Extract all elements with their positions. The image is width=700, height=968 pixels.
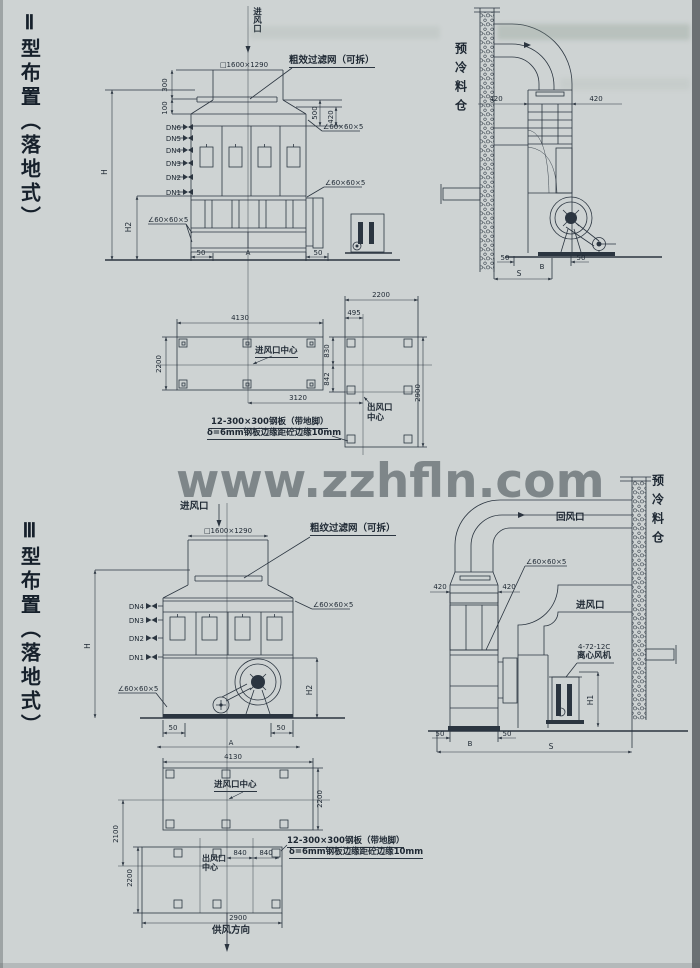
dim-2900: 2900 — [229, 914, 247, 922]
dim-2100: 2100 — [112, 825, 120, 843]
dim-840b: 840 — [259, 849, 272, 857]
angle-steel-1: ∠60×60×5 — [323, 123, 363, 131]
dim-3120: 3120 — [289, 394, 307, 402]
dim-B: B — [540, 263, 545, 271]
dim-840a: 840 — [233, 849, 246, 857]
dim-50r: 50 — [314, 249, 323, 257]
dim-S: S — [549, 742, 554, 751]
type3-side-inlet-label: 进风口 — [576, 601, 605, 612]
dim-420r: 420 — [589, 95, 602, 103]
angle-steel-6: ∠60×60×5 — [526, 558, 566, 566]
dim-100: 100 — [161, 101, 169, 114]
type3-section-title: Ⅲ型布置（落地式） — [17, 518, 39, 738]
ghost-bleedthrough-3 — [560, 78, 690, 90]
dim-2900: 2900 — [414, 384, 422, 402]
type2-rear-fan — [306, 198, 392, 253]
dim-50r: 50 — [577, 254, 586, 262]
dim-50l: 50 — [169, 724, 178, 732]
inlet-size-label: □1600×1290 — [220, 61, 268, 69]
watermark: www.zzhfln.com — [176, 456, 605, 509]
type3-inlet-label: 进风口 — [180, 502, 209, 513]
dn4-label: DN4 — [166, 147, 182, 155]
angle-steel-4: ∠60×60×5 — [313, 601, 353, 609]
dim-842: 842 — [323, 372, 331, 385]
dim-A: A — [246, 249, 251, 257]
dim-H2: H2 — [305, 685, 314, 696]
dim-420: 420 — [327, 110, 335, 123]
type3-plan-note-1: 12-300×300钢板（带地脚） — [287, 837, 404, 848]
scan-edge-left — [0, 0, 3, 968]
angle-steel-5: ∠60×60×5 — [118, 685, 158, 693]
type2-plan-note-2: δ=6mm钢板边缘距砼边缘10mm — [207, 429, 341, 440]
dn1-label: DN1 — [129, 654, 144, 662]
angle-steel-2: ∠60×60×5 — [325, 179, 365, 187]
ghost-bleedthrough-2 — [497, 24, 690, 40]
dn3-label: DN3 — [129, 617, 144, 625]
dim-420l: 420 — [433, 583, 446, 591]
dn3-label: DN3 — [166, 160, 181, 168]
type3-plan-note-2: δ=6mm钢板边缘距砼边缘10mm — [289, 848, 423, 859]
dim-4130: 4130 — [231, 314, 249, 322]
scan-edge-right — [692, 0, 700, 968]
dim-50l: 50 — [501, 254, 510, 262]
dn4-label: DN4 — [129, 603, 145, 611]
dim-H2: H2 — [124, 222, 133, 233]
type2-plan-note-1: 12-300×300钢板（带地脚） — [211, 418, 328, 429]
type2-plan-pads-right — [347, 339, 412, 443]
dim-4130: 4130 — [224, 753, 242, 761]
type3-supply-direction-label: 供风方向 — [212, 926, 250, 937]
inlet-size-label-3: □1600×1290 — [204, 527, 252, 535]
type3-front-fan — [213, 659, 281, 714]
type2-silo-label: 预冷料仓 — [453, 42, 466, 118]
scanned-drawing-page: DN6 DN5 DN4 DN3 DN2 DN1 300 100 500 420 … — [0, 0, 700, 968]
angle-steel-3: ∠60×60×5 — [148, 216, 188, 224]
type3-side-motor — [546, 677, 584, 724]
type2-side-view: 420 420 50 B 50 S — [441, 8, 662, 279]
dim-50r: 50 — [503, 730, 512, 738]
type3-dn-nozzles: DN4 DN3 DN2 DN1 — [129, 603, 163, 662]
dim-A: A — [229, 739, 234, 747]
dn2-label: DN2 — [166, 174, 181, 182]
dim-H: H — [83, 643, 92, 649]
type2-plan-inlet-center: 进风口中心 — [255, 347, 298, 358]
type3-front-view: □1600×1290 DN4 DN3 DN2 DN1 — [83, 503, 353, 948]
type3-plan-outlet-center-2: 中心 — [202, 864, 218, 873]
fan-model-label: 4-72-12C — [578, 643, 610, 651]
type2-section-title: Ⅱ型布置（落地式） — [17, 10, 39, 230]
type2-filter-label: 粗效过滤网（可拆） — [289, 56, 375, 68]
type2-dn-nozzles: DN6 DN5 DN4 DN3 DN2 DN1 — [166, 124, 193, 197]
type3-return-air-label: 回风口 — [556, 513, 585, 524]
dim-H1: H1 — [586, 695, 595, 706]
scan-edge-bottom — [0, 963, 700, 968]
dim-2200-top: 2200 — [316, 790, 324, 808]
dim-500: 500 — [311, 106, 319, 119]
dim-H: H — [100, 169, 109, 175]
type3-fan-name-label: 离心风机 — [577, 652, 611, 662]
ghost-bleedthrough-1 — [250, 26, 440, 39]
dim-420l: 420 — [489, 95, 502, 103]
type2-side-fan — [538, 197, 616, 256]
type3-plan-inlet-center: 进风口中心 — [214, 781, 257, 792]
dn2-label: DN2 — [129, 635, 144, 643]
dim-495: 495 — [347, 309, 360, 317]
dim-B: B — [468, 740, 473, 748]
dim-S: S — [517, 269, 522, 278]
dn6-label: DN6 — [166, 124, 182, 132]
type3-silo-label: 预冷料仓 — [650, 474, 663, 550]
type3-filter-label: 粗纹过滤网（可拆） — [310, 524, 396, 536]
dim-50l: 50 — [197, 249, 206, 257]
dn5-label: DN5 — [166, 135, 181, 143]
dim-2200-low: 2200 — [126, 869, 134, 887]
dim-2200-top: 2200 — [372, 291, 390, 299]
dim-830: 830 — [323, 344, 331, 357]
dim-50r: 50 — [277, 724, 286, 732]
dim-2200: 2200 — [155, 355, 163, 373]
type2-plan-outlet-center-2: 中心 — [367, 414, 384, 424]
